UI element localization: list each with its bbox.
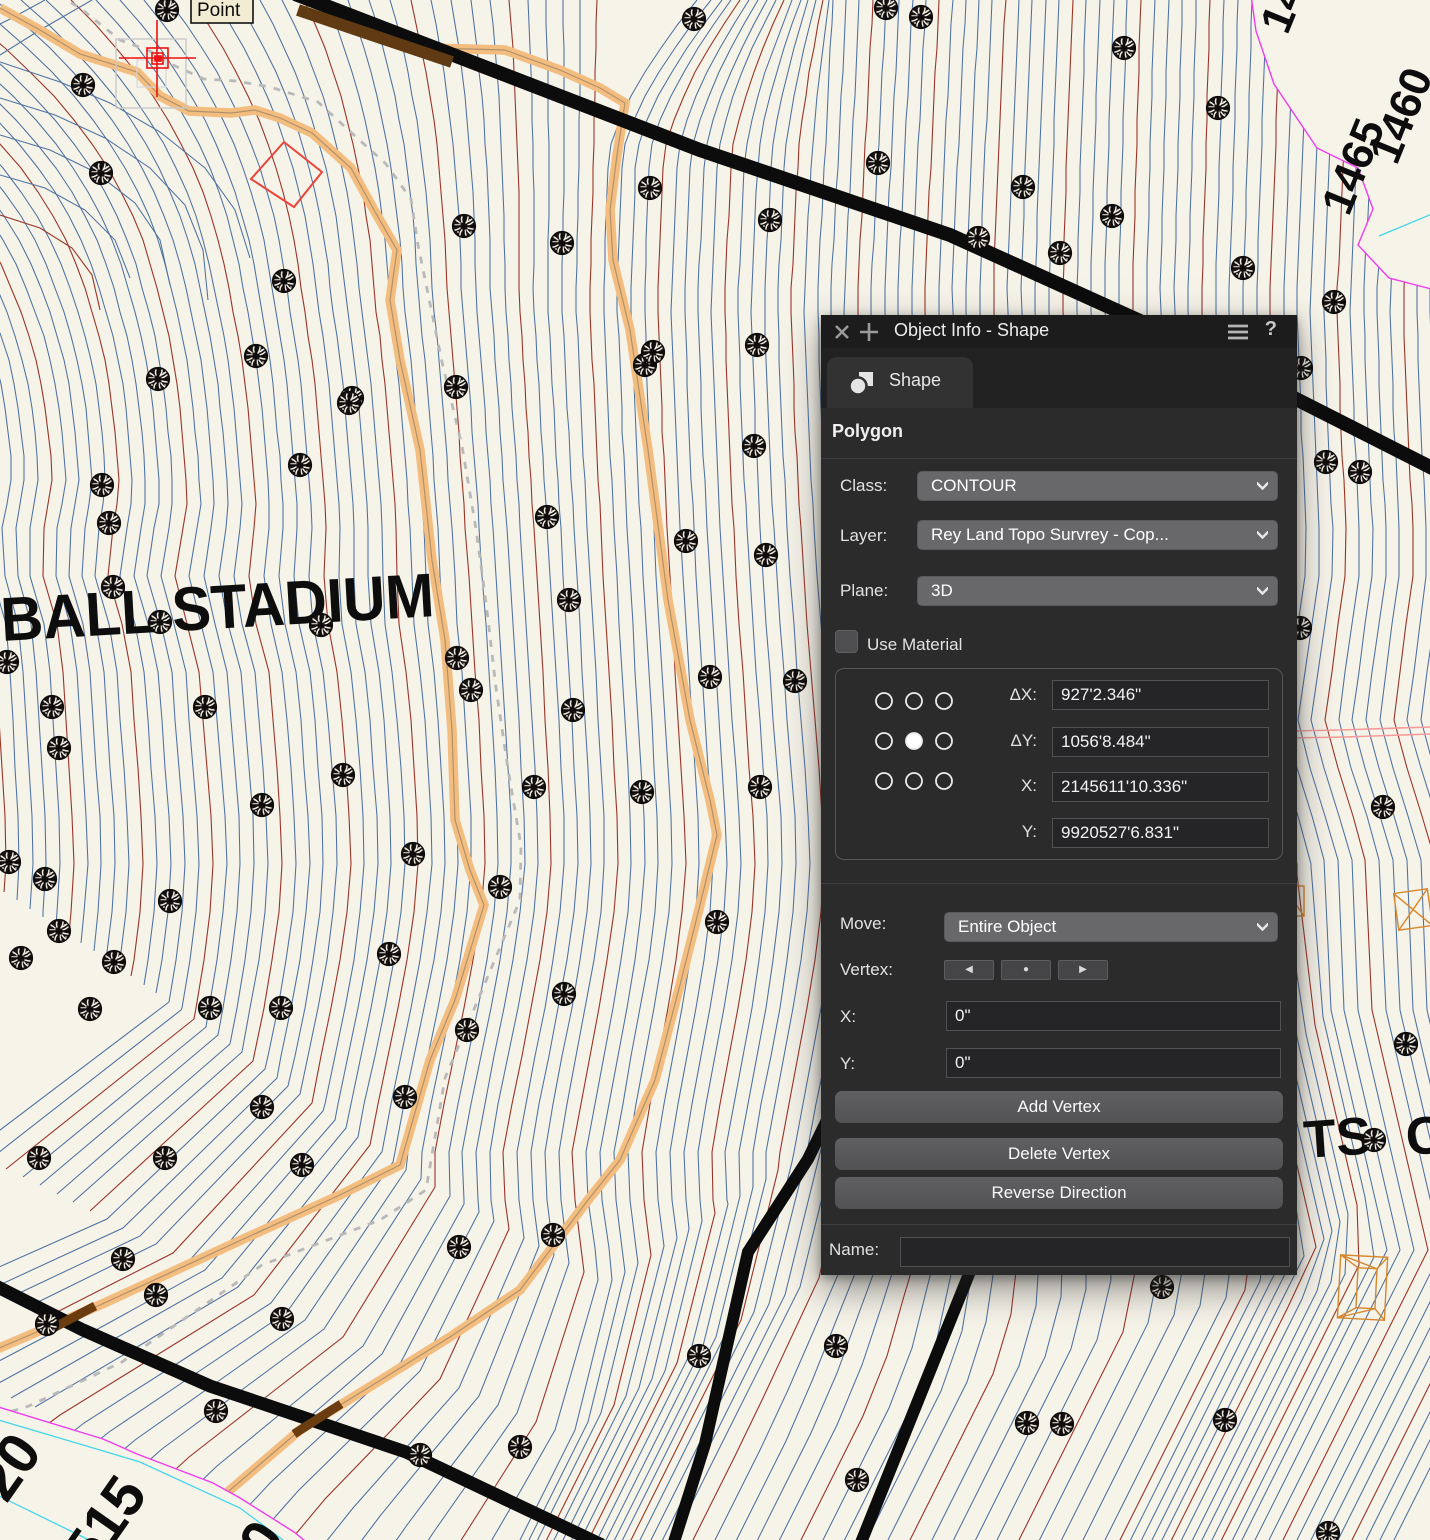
svg-text:C: C (1404, 1105, 1430, 1167)
svg-text:Point: Point (197, 0, 241, 21)
